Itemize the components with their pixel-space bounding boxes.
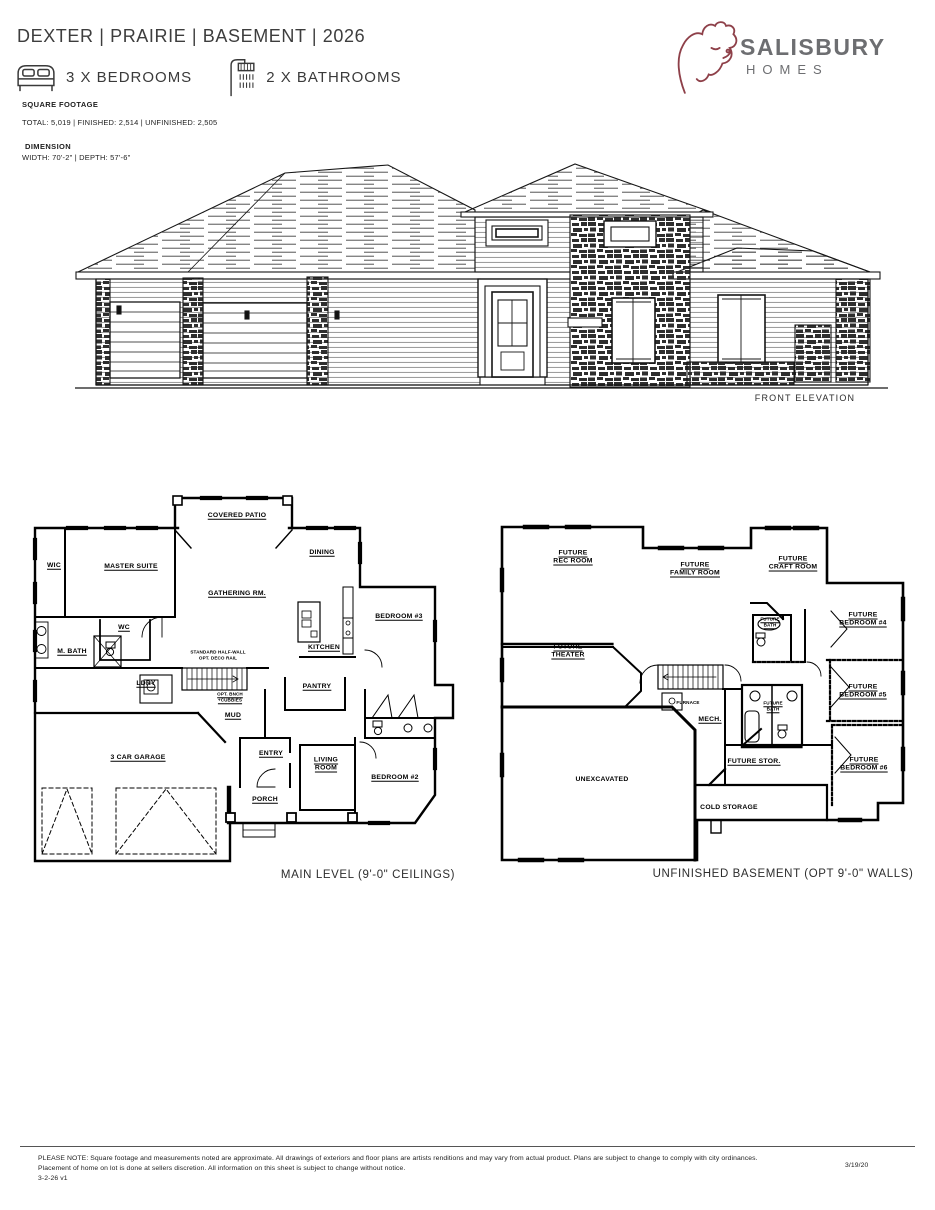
room-label-porch: PORCH: [252, 796, 278, 804]
logo-sub: HOMES: [746, 62, 829, 77]
page-title: DEXTER | PRAIRIE | BASEMENT | 2026: [17, 26, 365, 47]
disclaimer-line2: Placement of home on lot is done at sell…: [38, 1165, 405, 1172]
note-stair: STANDARD HALF-WALL OPT. DECO RAIL: [190, 649, 245, 660]
room-label-future-rec: FUTURE REC ROOM: [553, 550, 592, 567]
room-label-future-craft: FUTURE CRAFT ROOM: [769, 556, 818, 573]
room-label-wc: WC: [118, 624, 130, 632]
main-level-plan-drawing: [10, 492, 465, 877]
front-elevation-drawing: [68, 158, 893, 403]
basement-caption: UNFINISHED BASEMENT (OPT 9'-0" WALLS): [653, 868, 914, 880]
feature-row: 3 X BEDROOMS 2 X BATHROOMS: [14, 57, 401, 97]
room-label-dining: DINING: [309, 549, 334, 557]
elevation-caption: FRONT ELEVATION: [755, 393, 856, 403]
room-label-ldry: LDRY: [136, 680, 155, 688]
dimension-heading: DIMENSION: [25, 142, 71, 151]
room-label-living: LIVING ROOM: [314, 757, 338, 774]
logo-name: SALISBURY: [740, 34, 886, 61]
main-level-caption: MAIN LEVEL (9'-0" CEILINGS): [281, 869, 455, 881]
room-label-wic: WIC: [47, 562, 61, 570]
bathrooms-feature: 2 X BATHROOMS: [226, 57, 401, 97]
room-label-entry: ENTRY: [259, 750, 283, 758]
bedrooms-label: 3 X BEDROOMS: [66, 69, 192, 86]
room-label-future-family: FUTURE FAMILY ROOM: [670, 562, 720, 579]
room-label-unexcavated: UNEXCAVATED: [576, 776, 629, 784]
room-label-mud: MUD: [225, 712, 241, 720]
note-bench: OPT. BNCH +CUBBIES: [217, 691, 243, 702]
room-label-m-bath: M. BATH: [57, 648, 87, 656]
room-label-master-suite: MASTER SUITE: [104, 563, 158, 571]
room-label-future-bedroom4: FUTURE BEDROOM #4: [839, 612, 886, 629]
disclaimer-line1: PLEASE NOTE: Square footage and measurem…: [38, 1155, 758, 1162]
room-label-future-bath-upper: FUTURE BATH: [760, 616, 779, 627]
horse-head-icon: [672, 18, 738, 98]
sqft-heading: SQUARE FOOTAGE: [22, 100, 98, 109]
room-label-covered-patio: COVERED PATIO: [208, 512, 267, 520]
floorplan-sheet: DEXTER | PRAIRIE | BASEMENT | 2026 3 X B…: [0, 0, 935, 1210]
room-label-gathering: GATHERING RM.: [208, 590, 266, 598]
room-label-mech: MECH.: [698, 716, 721, 724]
room-label-future-bedroom6: FUTURE BEDROOM #6: [840, 757, 887, 774]
room-label-furnace: FURNACE: [676, 700, 699, 706]
room-label-future-bedroom5: FUTURE BEDROOM #5: [839, 684, 886, 701]
room-label-bedroom2: BEDROOM #2: [371, 774, 418, 782]
room-label-pantry: PANTRY: [303, 683, 332, 691]
footer-divider: [20, 1146, 915, 1147]
bathrooms-label: 2 X BATHROOMS: [266, 69, 401, 86]
bedrooms-feature: 3 X BEDROOMS: [14, 61, 192, 93]
room-label-future-stor: FUTURE STOR.: [727, 758, 780, 766]
room-label-bedroom3: BEDROOM #3: [375, 613, 422, 621]
plan-version: 3-2-26 v1: [38, 1175, 68, 1182]
room-label-kitchen: KITCHEN: [308, 644, 340, 652]
room-label-future-theater: FUTURE THEATER: [551, 644, 584, 661]
bed-icon: [14, 61, 58, 93]
room-label-cold-storage: COLD STORAGE: [700, 804, 758, 812]
room-label-future-bath-lower: FUTURE BATH: [763, 700, 782, 711]
sqft-detail: TOTAL: 5,019 | FINISHED: 2,514 | UNFINIS…: [22, 118, 217, 127]
room-label-garage: 3 CAR GARAGE: [110, 754, 165, 762]
shower-icon: [226, 57, 258, 97]
salisbury-homes-logo: SALISBURY HOMES: [672, 18, 912, 98]
plan-date: 3/19/20: [845, 1162, 868, 1169]
